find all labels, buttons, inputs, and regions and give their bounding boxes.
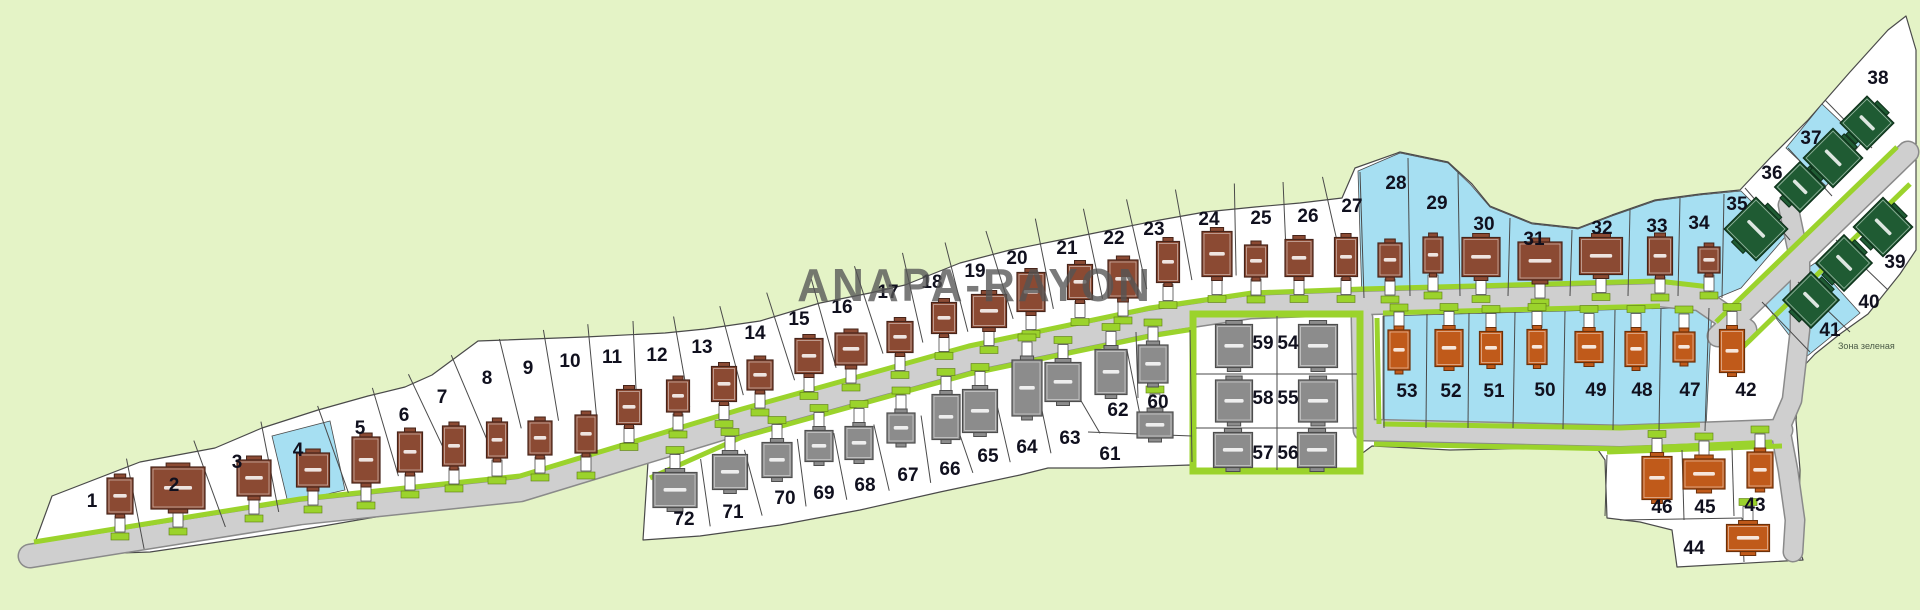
driveway-strip (1675, 306, 1693, 313)
lot-number-label: 36 (1761, 163, 1782, 184)
lot-number-label: 68 (854, 475, 875, 496)
house-lot-62 (1095, 346, 1127, 399)
lot-number-label: 2 (169, 475, 180, 496)
driveway-strip (669, 431, 687, 438)
house-lot-26 (1285, 236, 1313, 281)
house-lot-57 (1214, 429, 1253, 472)
lot-number-label: 5 (355, 418, 366, 439)
house-lot-12 (667, 376, 690, 416)
lot-number-label: 46 (1651, 497, 1672, 518)
lot-number-label: 65 (977, 446, 999, 467)
lot-number-label: 15 (788, 309, 810, 330)
house-lot-23 (1157, 238, 1180, 287)
driveway-strip (1700, 292, 1718, 299)
lot-number-label: 43 (1744, 495, 1765, 516)
lot-number-label: 44 (1683, 538, 1705, 559)
driveway-strip (169, 528, 187, 535)
house-lot-29 (1423, 233, 1443, 277)
lot-number-label: 30 (1473, 214, 1494, 235)
lot-number-label: 52 (1440, 381, 1461, 402)
house-lot-20 (1017, 269, 1045, 316)
driveway-strip (751, 409, 769, 416)
house-lot-60 (1138, 341, 1168, 387)
house-lot-58 (1216, 376, 1253, 426)
lot-number-label: 45 (1694, 497, 1716, 518)
driveway-strip (1695, 433, 1713, 440)
lot-number-label: 60 (1147, 392, 1168, 413)
driveway-strip (1102, 324, 1120, 331)
house-lot-67 (887, 409, 915, 447)
lot-number-label: 27 (1341, 196, 1362, 217)
lot-number-label: 66 (939, 459, 960, 480)
lot-number-label: 41 (1819, 320, 1841, 341)
house-lot-11 (617, 386, 642, 429)
house-lot-51 (1480, 328, 1503, 369)
house-lot-28 (1378, 239, 1402, 281)
house-lot-56 (1298, 429, 1337, 472)
driveway-strip (1592, 294, 1610, 301)
lot-number-label: 42 (1735, 380, 1756, 401)
house-lot-13 (712, 363, 737, 406)
lot-number-label: 26 (1297, 206, 1318, 227)
driveway-strip (1651, 294, 1669, 301)
house-lot-22 (1108, 256, 1138, 302)
driveway-strip (401, 491, 419, 498)
driveway-strip (1390, 304, 1408, 311)
house-lot-54 (1299, 321, 1338, 372)
driveway-strip (810, 405, 828, 412)
house-lot-50 (1527, 326, 1547, 369)
driveway-strip (1337, 296, 1355, 303)
lot-number-label: 55 (1277, 388, 1299, 409)
house-lot-42 (1720, 326, 1745, 377)
house-lot-34 (1698, 243, 1720, 277)
lot-number-label: 9 (523, 358, 534, 379)
house-lot-72 (653, 469, 697, 512)
house-lot-44 (1727, 521, 1770, 556)
lot-number-label: 8 (482, 368, 493, 389)
house-lot-32 (1580, 234, 1623, 279)
house-lot-46 (1642, 453, 1672, 504)
house-lot-24 (1202, 228, 1232, 281)
driveway-strip (1071, 319, 1089, 326)
house-lot-53 (1388, 326, 1410, 374)
lot-number-label: 39 (1884, 252, 1905, 273)
house-lot-30 (1462, 234, 1500, 281)
blue-lot-area (1383, 307, 1712, 430)
driveway-strip (721, 429, 739, 436)
lot-number-label: 56 (1277, 443, 1298, 464)
house-lot-45 (1683, 455, 1725, 493)
lot-number-label: 22 (1103, 228, 1124, 249)
house-lot-71 (713, 451, 748, 494)
driveway-strip (111, 533, 129, 540)
lot-number-label: 71 (722, 502, 744, 523)
lot-number-label: 16 (831, 297, 852, 318)
driveway-strip (1159, 302, 1177, 309)
lot-number-label: 63 (1059, 428, 1080, 449)
lot-number-label: 61 (1099, 444, 1121, 465)
house-lot-14 (747, 356, 773, 394)
lot-number-label: 12 (646, 345, 667, 366)
driveway-strip (937, 369, 955, 376)
house-lot-19 (972, 291, 1007, 332)
house-lot-8 (487, 418, 508, 462)
lot-number-label: 21 (1056, 238, 1078, 259)
lot-number-label: 59 (1252, 333, 1273, 354)
lot-number-label: 35 (1726, 194, 1748, 215)
lot-number-label: 38 (1867, 68, 1888, 89)
driveway-strip (531, 474, 549, 481)
house-lot-65 (963, 386, 998, 437)
house-lot-47 (1673, 328, 1695, 366)
house-lot-66 (932, 391, 960, 444)
driveway-strip (1627, 306, 1645, 313)
driveway-strip (1528, 304, 1546, 311)
house-lot-61 (1137, 408, 1173, 442)
lot-number-label: 18 (921, 272, 942, 293)
driveway-strip (445, 485, 463, 492)
house-lot-70 (762, 439, 792, 482)
site-plan: 1234567891011121314151617181920212223242… (0, 0, 1920, 610)
driveway-strip (971, 364, 989, 371)
driveway-strip (850, 401, 868, 408)
driveway-strip (1114, 317, 1132, 324)
house-lot-10 (575, 411, 597, 457)
lot-number-label: 33 (1646, 216, 1667, 237)
lot-number-label: 67 (897, 465, 918, 486)
lot-number-label: 4 (293, 440, 304, 461)
house-lot-49 (1575, 328, 1603, 367)
lot-number-label: 11 (602, 347, 623, 368)
lot-number-label: 51 (1483, 381, 1505, 402)
lot-number-label: 31 (1523, 229, 1545, 250)
lot-number-label: 7 (437, 387, 448, 408)
lot-number-label: 17 (877, 282, 898, 303)
lot-number-label: 53 (1396, 381, 1417, 402)
house-lot-6 (398, 428, 423, 476)
house-lot-69 (805, 427, 833, 466)
lot-number-label: 49 (1585, 380, 1606, 401)
house-lot-52 (1435, 326, 1463, 371)
driveway-strip (1472, 296, 1490, 303)
house-lot-25 (1245, 241, 1268, 281)
lot-number-label: 3 (232, 452, 243, 473)
lot-number-label: 48 (1631, 380, 1652, 401)
driveway-strip (935, 353, 953, 360)
lot-number-label: 54 (1277, 333, 1299, 354)
lot-number-label: 57 (1252, 443, 1273, 464)
green-strip (1377, 318, 1379, 424)
lot-number-label: 47 (1679, 380, 1700, 401)
driveway-strip (1054, 337, 1072, 344)
house-lot-68 (845, 423, 873, 464)
lot-number-label: 14 (744, 323, 766, 344)
driveway-strip (1018, 334, 1036, 341)
house-lot-7 (443, 422, 466, 470)
lot-number-label: 34 (1688, 213, 1710, 234)
house-lot-64 (1012, 356, 1042, 420)
house-lot-17 (887, 318, 913, 357)
house-lot-15 (795, 335, 823, 378)
lot-number-label: 24 (1198, 209, 1220, 230)
driveway-strip (1247, 296, 1265, 303)
house-lot-55 (1299, 376, 1338, 426)
driveway-strip (1482, 306, 1500, 313)
lot-number-label: 13 (691, 337, 712, 358)
lot-number-label: 40 (1858, 292, 1879, 313)
lot-number-label: 58 (1252, 388, 1273, 409)
lot-number-label: 19 (964, 261, 985, 282)
lot-number-label: 20 (1006, 248, 1027, 269)
house-lot-33 (1648, 233, 1673, 279)
house-lot-16 (835, 329, 867, 369)
driveway-strip (768, 417, 786, 424)
driveway-strip (245, 515, 263, 522)
house-lot-18 (932, 299, 957, 338)
house-lot-27 (1335, 234, 1358, 281)
lot-number-label: 50 (1534, 380, 1555, 401)
driveway-strip (800, 393, 818, 400)
lot-number-label: 25 (1250, 208, 1272, 229)
driveway-strip (715, 421, 733, 428)
driveway-strip (577, 472, 595, 479)
driveway-strip (1381, 296, 1399, 303)
house-lot-5 (352, 433, 380, 487)
house-lot-43 (1747, 448, 1773, 492)
house-lot-9 (528, 417, 552, 459)
driveway-strip (488, 477, 506, 484)
driveway-strip (1723, 304, 1741, 311)
driveway-strip (980, 347, 998, 354)
driveway-strip (1208, 296, 1226, 303)
lot-number-label: 6 (399, 405, 410, 426)
house-lot-48 (1625, 328, 1647, 371)
lot-number-label: 62 (1107, 400, 1128, 421)
driveway-strip (1648, 431, 1666, 438)
driveway-strip (1290, 296, 1308, 303)
lot-number-label: 23 (1143, 219, 1164, 240)
driveway-strip (357, 502, 375, 509)
house-lot-1 (107, 474, 133, 518)
lot-number-label: 69 (813, 483, 834, 504)
driveway-strip (304, 506, 322, 513)
driveway-strip (1440, 304, 1458, 311)
driveway-strip (620, 444, 638, 451)
lot-number-label: 72 (673, 509, 694, 530)
driveway-strip (1580, 306, 1598, 313)
lot-number-label: 64 (1016, 437, 1038, 458)
driveway-strip (892, 387, 910, 394)
lot-number-label: 1 (87, 491, 98, 512)
lot-number-label: 29 (1426, 193, 1447, 214)
lot-number-label: 37 (1800, 128, 1821, 149)
lot-number-label: 10 (559, 351, 580, 372)
lot-number-label: 28 (1385, 173, 1406, 194)
house-lot-59 (1216, 321, 1253, 372)
driveway-strip (1751, 426, 1769, 433)
driveway-strip (1144, 319, 1162, 326)
driveway-strip (1424, 292, 1442, 299)
lot-number-label: 70 (774, 488, 795, 509)
lot-number-label: 32 (1591, 218, 1612, 239)
driveway-strip (842, 384, 860, 391)
house-lot-63 (1045, 359, 1081, 406)
driveway-strip (666, 447, 684, 454)
driveway-strip (891, 372, 909, 379)
site-plan-svg: 1234567891011121314151617181920212223242… (0, 0, 1920, 610)
house-lot-21 (1068, 261, 1093, 304)
